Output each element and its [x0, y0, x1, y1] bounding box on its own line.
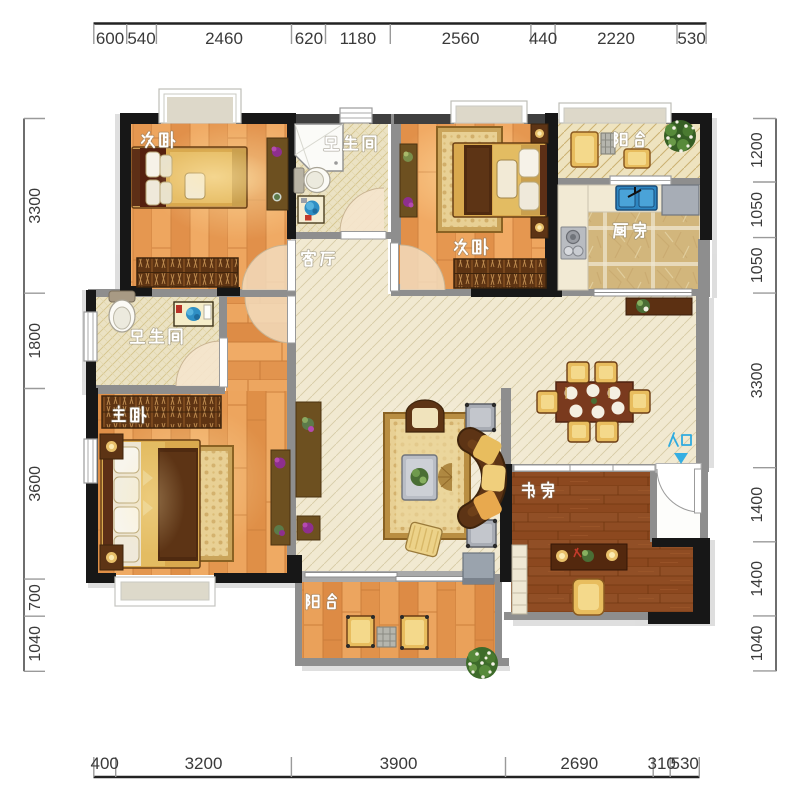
svg-text:3900: 3900 [380, 754, 418, 773]
svg-text:1400: 1400 [749, 487, 766, 523]
svg-text:530: 530 [671, 754, 699, 773]
svg-text:600: 600 [96, 29, 124, 48]
svg-text:400: 400 [91, 754, 119, 773]
svg-text:3600: 3600 [27, 466, 44, 502]
svg-text:1050: 1050 [749, 192, 766, 228]
svg-text:540: 540 [127, 29, 155, 48]
svg-text:3200: 3200 [185, 754, 223, 773]
svg-text:3300: 3300 [27, 188, 44, 224]
svg-text:2560: 2560 [442, 29, 480, 48]
svg-text:1040: 1040 [749, 626, 766, 662]
svg-text:2220: 2220 [597, 29, 635, 48]
svg-text:1800: 1800 [27, 323, 44, 359]
svg-text:1050: 1050 [749, 247, 766, 283]
svg-text:700: 700 [27, 584, 44, 611]
svg-text:620: 620 [295, 29, 323, 48]
svg-text:530: 530 [677, 29, 705, 48]
svg-text:1040: 1040 [27, 626, 44, 662]
svg-text:1400: 1400 [749, 561, 766, 597]
svg-text:3300: 3300 [749, 363, 766, 399]
svg-text:1180: 1180 [340, 29, 377, 48]
svg-text:440: 440 [529, 29, 557, 48]
svg-text:1200: 1200 [749, 132, 766, 168]
svg-text:2460: 2460 [205, 29, 243, 48]
svg-text:2690: 2690 [560, 754, 598, 773]
